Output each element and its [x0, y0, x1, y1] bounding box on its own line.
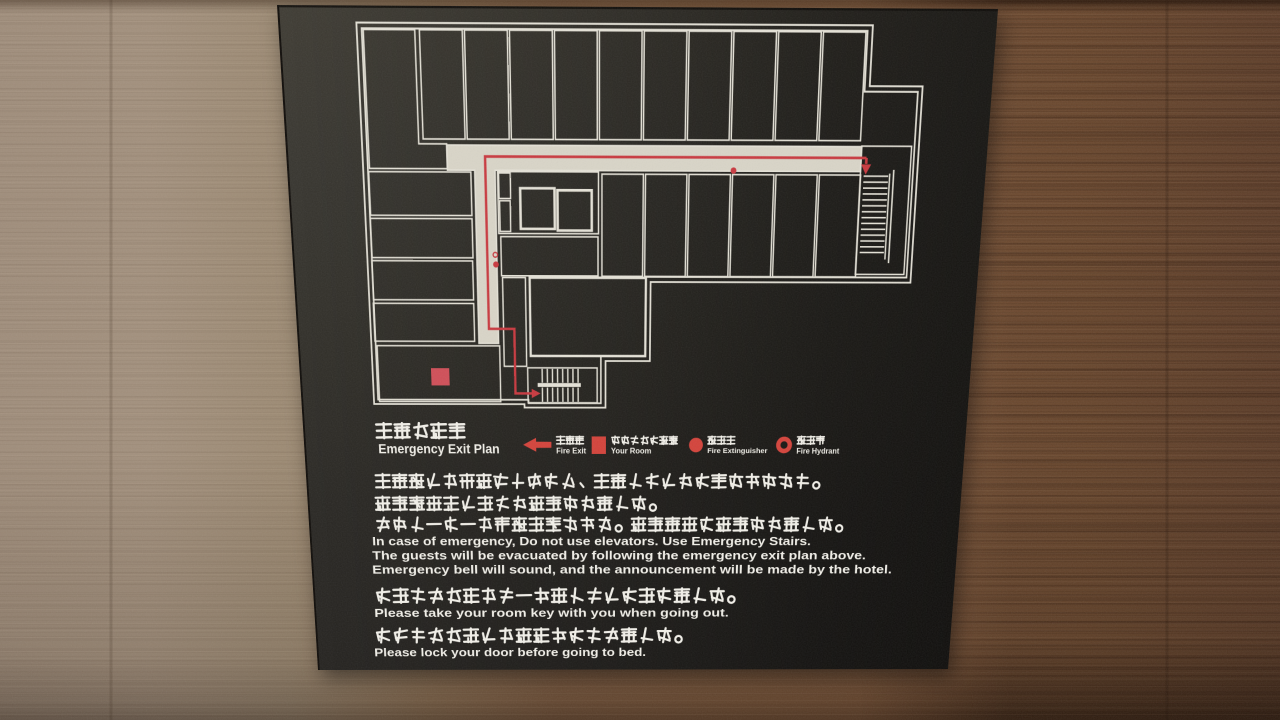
svg-text:Your Room: Your Room: [611, 447, 651, 456]
svg-text:Fire Exit: Fire Exit: [556, 447, 586, 456]
svg-text:Emergency Exit Plan: Emergency Exit Plan: [378, 442, 500, 456]
svg-text:The guests will be evacuated b: The guests will be evacuated by followin…: [372, 549, 866, 563]
svg-text:Fire Hydrant: Fire Hydrant: [796, 447, 839, 456]
svg-text:Fire Extinguisher: Fire Extinguisher: [707, 446, 768, 455]
svg-text:Emergency bell will sound, and: Emergency bell will sound, and the annou…: [372, 563, 892, 577]
svg-text:In case of emergency, Do not u: In case of emergency, Do not use elevato…: [372, 535, 811, 549]
svg-text:Please lock your door before g: Please lock your door before going to be…: [374, 646, 646, 659]
svg-text:Please take your room key with: Please take your room key with you when …: [374, 607, 729, 621]
